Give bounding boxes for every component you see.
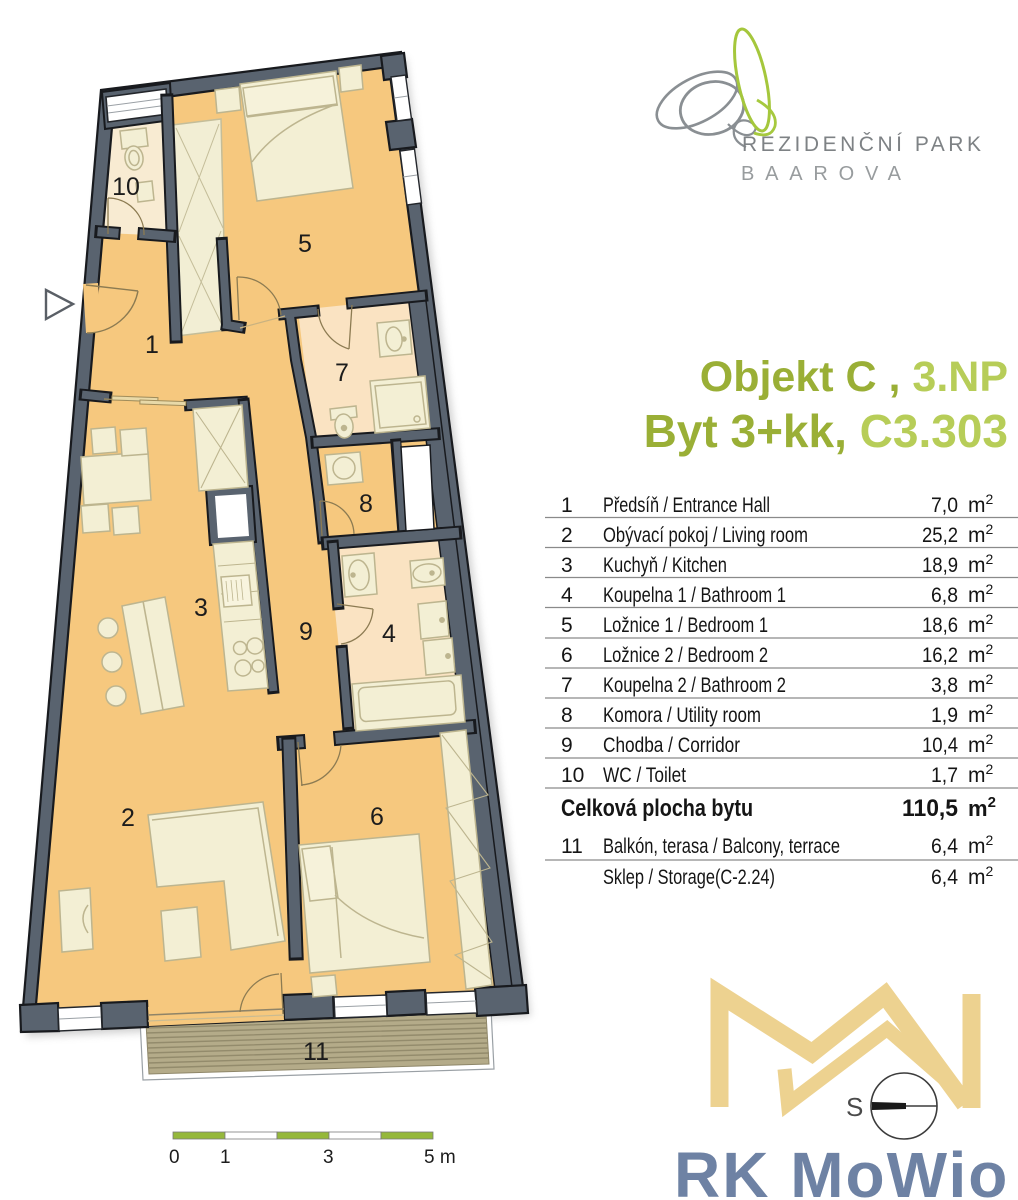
svg-text:1,9: 1,9 [931,704,958,727]
svg-text:m2: m2 [968,671,994,697]
svg-text:1: 1 [220,1147,231,1168]
svg-text:Byt 3+kk, C3.303: Byt 3+kk, C3.303 [644,405,1008,457]
svg-text:m2: m2 [968,611,994,637]
svg-text:Předsíň / Entrance Hall: Předsíň / Entrance Hall [603,494,770,517]
svg-text:11: 11 [303,1038,329,1066]
svg-text:6,4: 6,4 [931,835,958,858]
svg-text:RK MoWio: RK MoWio [674,1139,1009,1200]
svg-text:7,0: 7,0 [931,494,958,517]
svg-text:m2: m2 [968,521,994,547]
svg-text:m2: m2 [968,701,994,727]
svg-text:6: 6 [370,803,384,831]
svg-text:m2: m2 [968,641,994,667]
svg-text:Balkón, terasa / Balcony, terr: Balkón, terasa / Balcony, terrace [603,835,840,858]
svg-text:6: 6 [561,644,573,667]
svg-text:9: 9 [299,618,313,646]
svg-text:Obývací pokoj / Living room: Obývací pokoj / Living room [603,524,808,547]
svg-text:10: 10 [112,173,140,201]
svg-text:1: 1 [561,494,573,517]
svg-text:Koupelna 1 / Bathroom 1: Koupelna 1 / Bathroom 1 [603,584,786,607]
svg-text:8: 8 [561,704,573,727]
svg-text:10: 10 [561,764,584,787]
svg-text:m2: m2 [968,491,994,517]
svg-text:m2: m2 [968,551,994,577]
svg-text:4: 4 [382,620,396,648]
svg-text:9: 9 [561,734,573,757]
svg-text:3: 3 [194,594,208,622]
svg-text:m2: m2 [968,863,994,889]
svg-text:110,5: 110,5 [902,795,958,822]
svg-text:Sklep / Storage(C-2.24): Sklep / Storage(C-2.24) [603,866,775,889]
svg-text:m2: m2 [968,761,994,787]
svg-text:m2: m2 [968,581,994,607]
svg-text:Kuchyň / Kitchen: Kuchyň / Kitchen [603,554,727,577]
svg-text:7: 7 [335,359,349,387]
svg-text:REZIDENČNÍ PARK: REZIDENČNÍ PARK [742,133,981,156]
svg-text:3: 3 [561,554,573,577]
svg-text:S: S [846,1092,863,1122]
svg-text:4: 4 [561,584,573,607]
svg-text:7: 7 [561,674,573,697]
svg-text:5: 5 [298,230,312,258]
svg-text:3,8: 3,8 [931,674,958,697]
svg-text:5 m: 5 m [424,1147,456,1168]
svg-text:m2: m2 [968,731,994,757]
svg-text:m2: m2 [968,832,994,858]
svg-text:16,2: 16,2 [922,644,958,667]
svg-text:m2: m2 [968,794,996,821]
svg-text:3: 3 [323,1147,334,1168]
svg-text:5: 5 [561,614,573,637]
svg-text:0: 0 [169,1147,180,1168]
svg-text:Celková plocha bytu: Celková plocha bytu [561,795,753,822]
svg-text:Komora / Utility room: Komora / Utility room [603,704,761,727]
svg-text:6,8: 6,8 [931,584,958,607]
svg-text:8: 8 [359,490,373,518]
svg-text:Ložnice 2 / Bedroom 2: Ložnice 2 / Bedroom 2 [603,644,768,667]
svg-text:18,9: 18,9 [922,554,958,577]
svg-text:6,4: 6,4 [931,866,958,889]
svg-text:Koupelna 2 / Bathroom 2: Koupelna 2 / Bathroom 2 [603,674,786,697]
svg-text:BAAROVA: BAAROVA [741,163,902,185]
svg-text:1: 1 [145,331,159,359]
svg-text:11: 11 [561,835,583,858]
svg-text:18,6: 18,6 [922,614,958,637]
svg-text:25,2: 25,2 [922,524,958,547]
svg-text:2: 2 [121,804,135,832]
svg-text:1,7: 1,7 [931,764,958,787]
svg-text:10,4: 10,4 [922,734,958,757]
svg-text:2: 2 [561,524,573,547]
svg-text:WC / Toilet: WC / Toilet [603,764,686,787]
svg-text:Chodba / Corridor: Chodba / Corridor [603,734,740,757]
svg-text:Ložnice 1 / Bedroom 1: Ložnice 1 / Bedroom 1 [603,614,768,637]
svg-text:Objekt C , 3.NP: Objekt C , 3.NP [700,353,1008,401]
